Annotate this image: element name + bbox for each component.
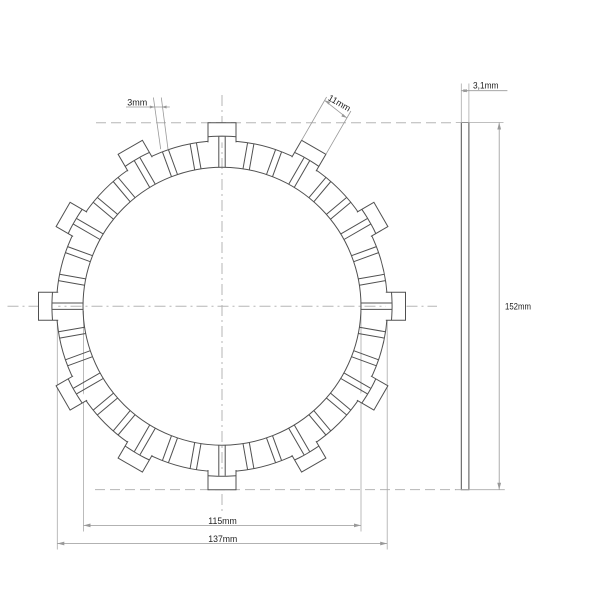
svg-text:137mm: 137mm <box>208 534 237 544</box>
svg-text:3mm: 3mm <box>127 97 147 107</box>
svg-text:152mm: 152mm <box>505 302 531 312</box>
svg-text:3,1mm: 3,1mm <box>473 81 499 91</box>
svg-text:115mm: 115mm <box>208 516 237 526</box>
